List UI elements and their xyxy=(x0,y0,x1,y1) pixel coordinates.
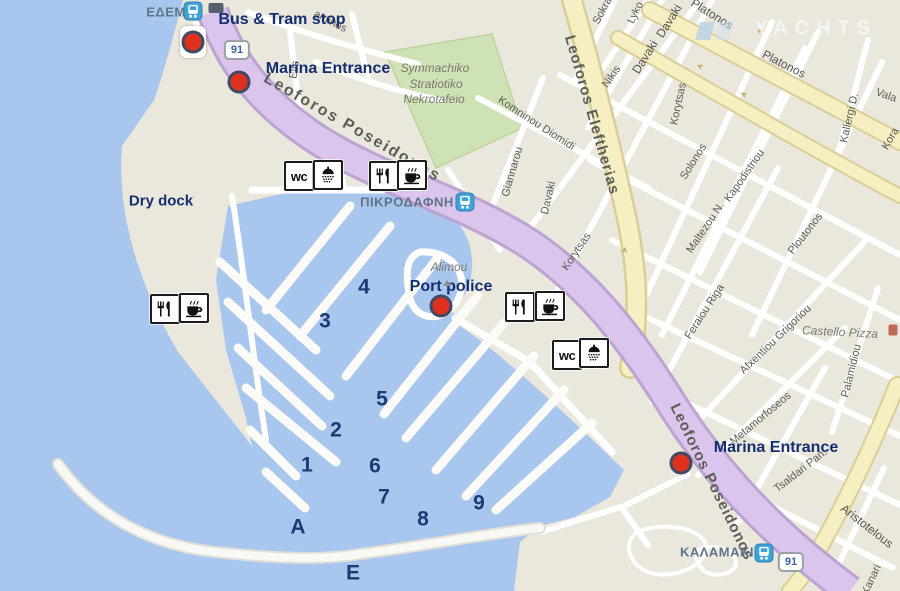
street-label-giannarou: Giannarou xyxy=(501,146,526,198)
area-label-dry-dock: Dry dock xyxy=(129,194,193,209)
station-label-2: ΚΑΛΑΜΑΚΙ xyxy=(680,546,754,559)
port-police-label: Port police xyxy=(410,279,493,295)
marina-entrance-south-label: Marina Entrance xyxy=(714,440,838,456)
poi-label-stratiotiko: Stratiotiko xyxy=(409,78,462,90)
station-label-0: ΕΔΕΜ xyxy=(146,6,186,19)
marina-entrance-north-marker xyxy=(228,71,251,94)
street-label-korytsas: Korytsas xyxy=(669,82,689,126)
street-label-leoforos-eleftherias: Leoforos Eleftherias xyxy=(562,34,622,197)
one-way-arrow-icon: ➤ xyxy=(619,246,631,254)
wc-icon: wc xyxy=(284,161,314,191)
pier-label-7: 7 xyxy=(378,487,390,508)
route-badge-91: 91 xyxy=(778,552,804,572)
street-label-maltezou-n-: Maltezou N. xyxy=(685,201,727,256)
street-label-davaki: Davaki xyxy=(540,180,558,215)
poi-label-symmachiko: Symmachiko xyxy=(401,62,470,74)
shower-icon xyxy=(579,338,609,368)
restaurant-icon xyxy=(505,292,535,322)
street-label-davaki: Davaki xyxy=(630,38,660,75)
coffee-icon xyxy=(179,293,209,323)
train-station-icon xyxy=(184,2,203,21)
street-label-sokra: Sokra xyxy=(591,0,614,26)
stop-shelter-icon xyxy=(209,3,224,13)
pier-label-A: A xyxy=(290,517,305,538)
train-station-icon xyxy=(456,193,475,212)
train-station-icon xyxy=(755,544,774,563)
pier-label-E: E xyxy=(346,563,360,584)
pier-label-4: 4 xyxy=(358,277,370,298)
pier-label-2: 2 xyxy=(330,420,342,441)
street-label-lyko: Lyko xyxy=(626,0,646,25)
street-label-afxentiou-grigoriou: Afxentiou Grigoriou xyxy=(738,303,813,376)
poi-label-alimou: Alimou xyxy=(431,261,468,273)
street-label-palamidiou: Palamidiou xyxy=(840,343,864,398)
pier-label-9: 9 xyxy=(473,493,485,514)
street-label-davaki: Davaki xyxy=(654,2,684,39)
pier-label-5: 5 xyxy=(376,389,388,410)
street-label-kora: Kora xyxy=(880,126,900,152)
route-badge-91: 91 xyxy=(224,40,250,60)
street-label-kanari: Kanari xyxy=(860,563,883,591)
castello-pizza-icon xyxy=(889,325,898,336)
bus-tram-stop-label: Bus & Tram stop xyxy=(218,12,345,28)
street-label-solonos: Solonos xyxy=(679,142,709,182)
marina-map: Leoforos PoseidonosLeoforos PoseidonosLe… xyxy=(0,0,900,591)
street-label-kallergi-d-: Kallergi D. xyxy=(839,92,861,144)
watermark-text: YACHTS xyxy=(755,18,877,41)
restaurant-icon xyxy=(150,294,180,324)
alimou-marker-icon xyxy=(443,280,451,286)
wc-icon: wc xyxy=(552,340,582,370)
one-way-arrow-icon: ➤ xyxy=(738,87,749,100)
one-way-arrow-icon: ➤ xyxy=(694,59,705,72)
street-label-platonos: Platonos xyxy=(760,48,807,80)
poi-label-castello-pizza: Castello Pizza xyxy=(802,324,879,340)
marina-entrance-south-marker xyxy=(670,452,693,475)
pier-label-3: 3 xyxy=(319,311,331,332)
street-label-nikis: Nikis xyxy=(601,64,624,90)
restaurant-icon xyxy=(369,161,399,191)
coffee-icon xyxy=(535,291,565,321)
poi-label-nekrotafeio: Nekrotafeio xyxy=(403,93,464,105)
street-label-aristotelous: Aristotelous xyxy=(839,502,896,550)
street-label-vala: Vala xyxy=(874,87,898,105)
street-label-kapodistriou: Kapodistriou xyxy=(723,148,767,204)
pier-label-1: 1 xyxy=(301,455,313,476)
street-label-komninou-diomidi: Komninou Diomidi xyxy=(496,95,577,153)
station-label-1: ΠΙΚΡΟΔΑΦΝΗ xyxy=(360,196,454,209)
coffee-icon xyxy=(397,160,427,190)
shower-icon xyxy=(313,160,343,190)
street-label-korytsas: Korytsas xyxy=(560,231,593,273)
pier-label-6: 6 xyxy=(369,456,381,477)
bus-tram-stop-marker xyxy=(182,31,205,54)
pier-label-8: 8 xyxy=(417,509,429,530)
street-label-feraiou-riga: Feraiou Riga xyxy=(683,283,727,342)
marina-entrance-north-label: Marina Entrance xyxy=(266,61,390,77)
port-police-marker xyxy=(430,295,453,318)
street-label-ploutonos: Ploutonos xyxy=(787,211,826,256)
